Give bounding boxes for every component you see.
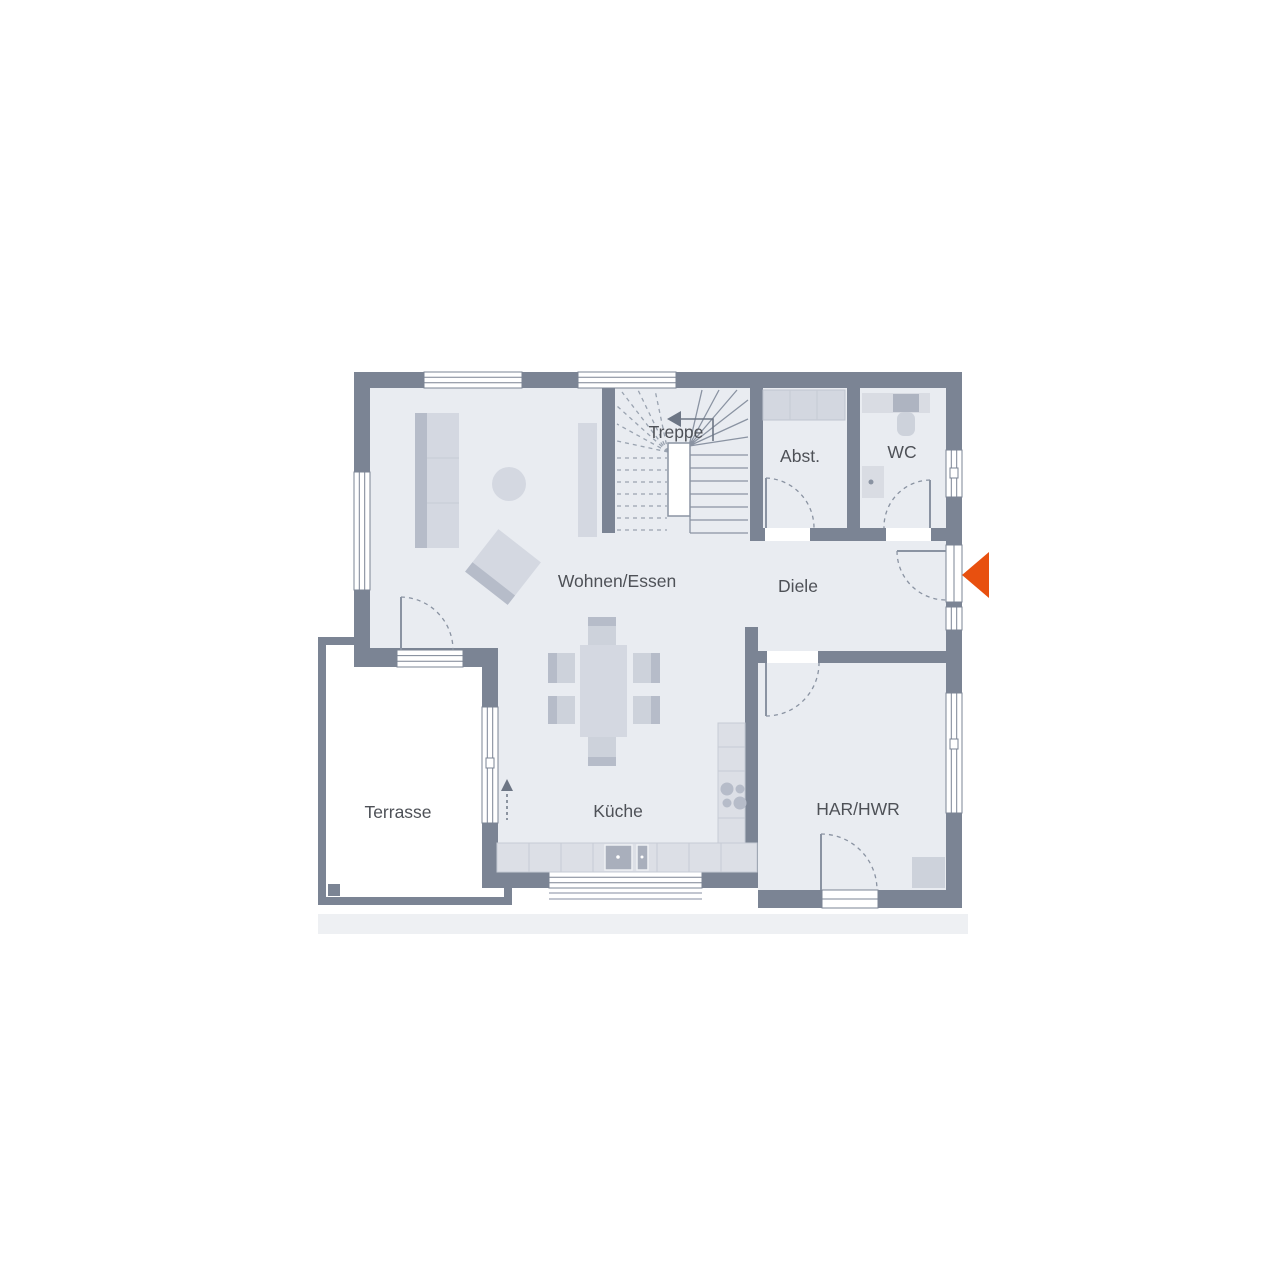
window-kitchen-terrace-slider [482, 707, 498, 823]
room-label-kueche: Küche [593, 801, 643, 821]
dining-chair [588, 736, 616, 766]
floor-har-hwr [758, 663, 946, 890]
window-handle [486, 758, 494, 768]
room-label-wc: WC [887, 442, 916, 462]
terrace-post [328, 884, 340, 896]
window-kitchen-bottom [549, 872, 702, 899]
window-handle [950, 739, 958, 749]
kitchen-counter-right [718, 723, 745, 843]
har-equipment [912, 857, 945, 888]
terrace [322, 641, 508, 901]
room-label-har-hwr: HAR/HWR [816, 799, 900, 819]
window-handle [950, 468, 958, 478]
dining-chair [548, 696, 575, 724]
floor-plan-svg: Treppe Abst. WC Wohnen/Essen Diele Terra… [0, 0, 1280, 1280]
room-label-terrasse: Terrasse [364, 802, 431, 822]
dining-table [580, 645, 627, 737]
dining-chair [548, 653, 575, 683]
exterior-sill-lines [549, 893, 702, 899]
room-label-wohnen-essen: Wohnen/Essen [558, 571, 676, 591]
stair-newel [668, 443, 690, 516]
coffee-table [492, 467, 526, 501]
washbasin [862, 466, 884, 498]
room-label-diele: Diele [778, 576, 818, 596]
floor-plan-page: Treppe Abst. WC Wohnen/Essen Diele Terra… [0, 0, 1280, 1280]
window-wc-right [946, 450, 962, 497]
dining-chair [633, 653, 660, 683]
window-stairs-top [578, 372, 676, 388]
stair-wall-left [602, 388, 615, 533]
abst-cabinets [763, 390, 845, 420]
terrace-outline [322, 641, 508, 901]
sink [605, 845, 648, 870]
stair-wall-right [750, 388, 763, 541]
dining-chair [588, 617, 616, 648]
sideboard [578, 423, 597, 537]
window-har-right [946, 693, 962, 813]
ground-shadow [318, 914, 968, 934]
window-living-left [354, 472, 370, 590]
dining-chair [633, 696, 660, 724]
entrance-arrow-icon [962, 552, 989, 598]
window-living-top [424, 372, 522, 388]
room-label-abst: Abst. [780, 446, 820, 466]
sofa [415, 413, 459, 548]
entrance-sidelight [946, 607, 962, 630]
room-label-treppe: Treppe [649, 422, 704, 442]
